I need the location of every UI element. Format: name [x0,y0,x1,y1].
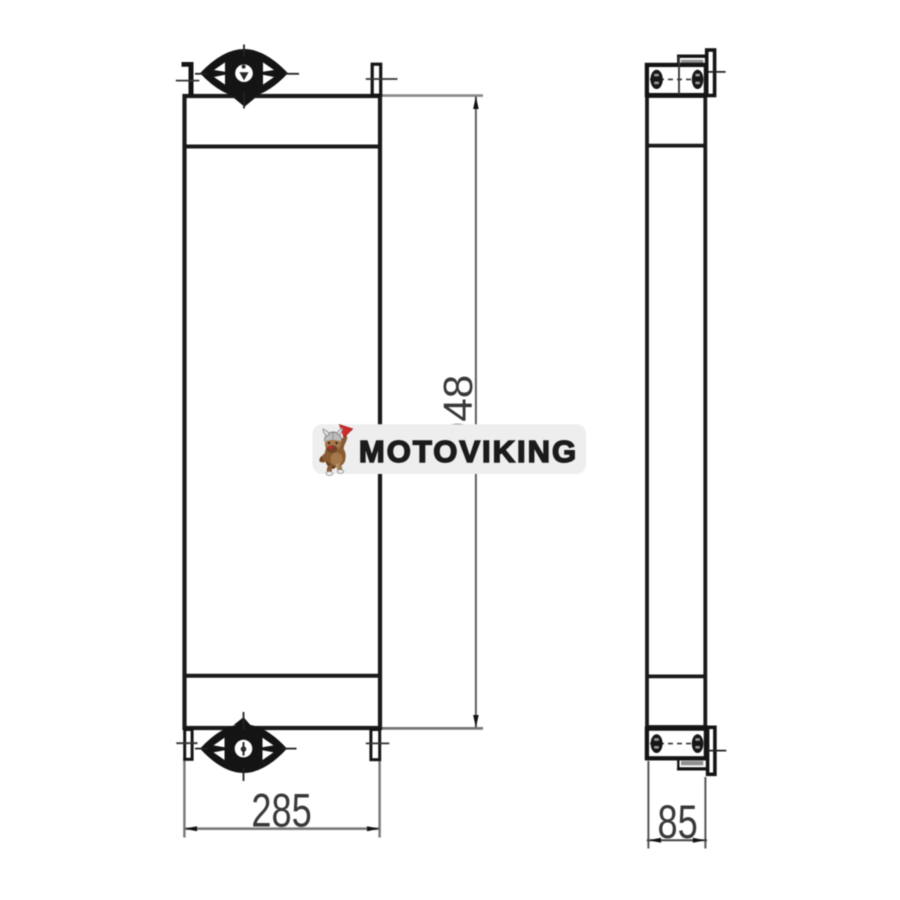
svg-text:MOTOVIKING: MOTOVIKING [359,434,578,469]
svg-text:85: 85 [657,795,697,848]
svg-text:285: 285 [251,784,311,837]
